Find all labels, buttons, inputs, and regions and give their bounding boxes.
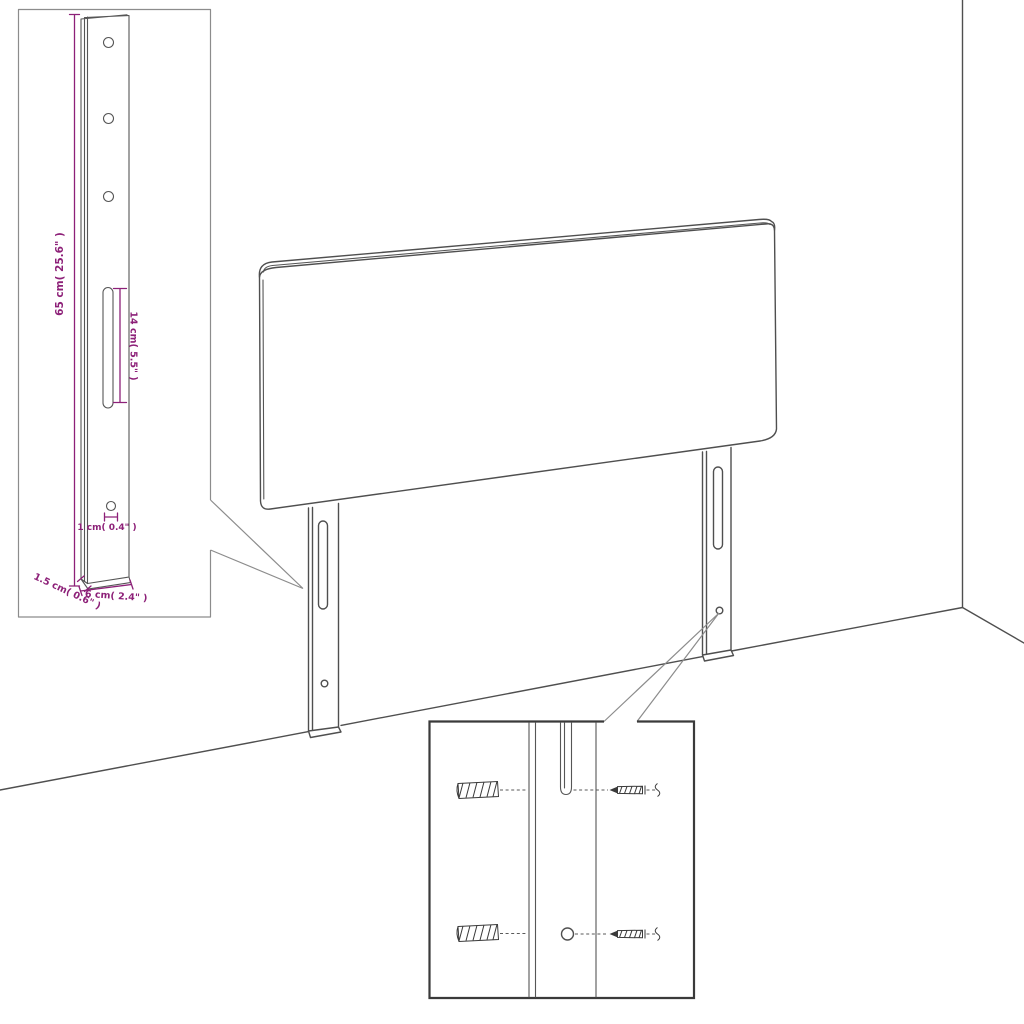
dimension-label-height: 65 cm( 25.6" )	[54, 232, 66, 316]
product-diagram: 65 cm( 25.6" ) 14 cm( 5.5" ) 1 cm( 0.4" …	[0, 0, 1024, 1024]
mounting-post-slot	[561, 723, 572, 795]
headboard-panel-face	[260, 224, 777, 509]
dimension-label-slot: 14 cm( 5.5" )	[128, 311, 139, 380]
right-leg-hole	[716, 607, 723, 614]
inset-leg-hole-3	[104, 192, 114, 202]
wall-break-mark-bottom	[655, 928, 660, 941]
mounting-post-hole	[562, 928, 574, 940]
room-background	[0, 0, 1024, 790]
left-leg-slot	[319, 521, 328, 609]
screw-top-icon	[610, 784, 660, 797]
headboard-left-edge-inner	[263, 280, 264, 499]
wall-plug-top-icon	[457, 781, 499, 798]
mounting-inset-border	[430, 722, 695, 999]
left-leg-outline	[309, 504, 339, 732]
mounting-post	[529, 723, 596, 998]
left-leg-hole	[321, 680, 328, 687]
assembly-diagram-screenshot: 65 cm( 25.6" ) 14 cm( 5.5" ) 1 cm( 0.4" …	[0, 0, 1024, 1024]
leg-dimensions: 65 cm( 25.6" ) 14 cm( 5.5" ) 1 cm( 0.4" …	[32, 15, 148, 613]
leg-detail-drawing	[81, 15, 131, 589]
dimension-line-hole	[105, 513, 118, 521]
leg-inset-pointer	[211, 500, 304, 589]
wall-break-mark-top	[655, 784, 660, 797]
inset-leg-outline	[81, 15, 129, 584]
inset-leg-hole-2	[104, 114, 114, 124]
inset-leg-hole-1	[104, 38, 114, 48]
dimension-label-hole: 1 cm( 0.4" )	[77, 523, 136, 533]
screw-bottom-icon	[610, 928, 660, 941]
headboard-left-leg	[309, 504, 342, 738]
mounting-inset-pointer	[604, 613, 719, 722]
right-leg-slot	[714, 467, 723, 549]
mounting-post-outline	[529, 723, 596, 998]
floor-line-right	[963, 608, 1024, 644]
mounting-detail-inset	[430, 613, 720, 998]
dimension-line-slot	[114, 289, 127, 403]
headboard-panel	[259, 219, 776, 509]
floor-line-left	[0, 608, 963, 791]
inset-leg-slot	[103, 288, 113, 409]
inset-leg-small-hole	[107, 502, 116, 511]
wall-plug-bottom-icon	[457, 924, 499, 941]
dimension-line-height	[70, 15, 80, 587]
